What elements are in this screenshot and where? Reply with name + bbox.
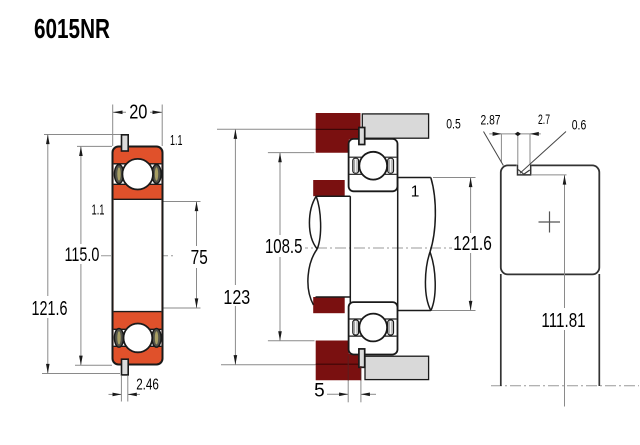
svg-text:108.5: 108.5 [265, 236, 303, 258]
svg-text:0.6: 0.6 [572, 117, 587, 133]
svg-text:1.1: 1.1 [92, 202, 105, 219]
svg-text:2.7: 2.7 [538, 111, 550, 127]
svg-text:115.0: 115.0 [65, 245, 100, 266]
svg-text:111.81: 111.81 [541, 310, 585, 332]
svg-text:20: 20 [129, 101, 147, 123]
svg-text:2.46: 2.46 [136, 377, 159, 394]
svg-text:121.6: 121.6 [453, 233, 492, 255]
svg-text:75: 75 [191, 247, 208, 269]
svg-text:0.5: 0.5 [446, 116, 461, 132]
svg-text:2.87: 2.87 [481, 112, 501, 128]
svg-text:5: 5 [314, 380, 325, 401]
svg-text:6015NR: 6015NR [34, 13, 110, 44]
svg-text:1: 1 [411, 184, 420, 201]
svg-text:1.1: 1.1 [170, 132, 183, 149]
svg-text:123: 123 [223, 287, 250, 309]
svg-text:121.6: 121.6 [32, 298, 68, 320]
